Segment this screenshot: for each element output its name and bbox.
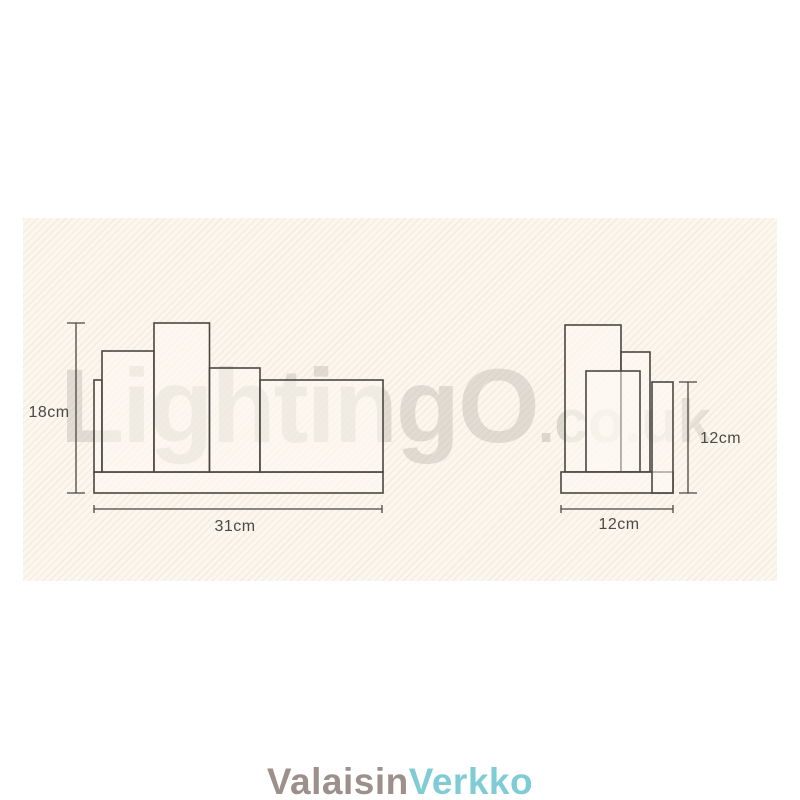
side-width-label: 12cm [598, 516, 639, 533]
front-view-drawing: 18cm 31cm [28, 323, 383, 535]
side-box-right [652, 382, 673, 493]
front-box-5 [260, 380, 383, 472]
side-height-label: 12cm [700, 430, 741, 447]
front-height-label: 18cm [28, 404, 69, 421]
front-base-shape [94, 472, 383, 493]
front-box-4 [210, 368, 261, 472]
product-dimension-image: LightingO.co.uk [0, 0, 800, 800]
front-box-3 [154, 323, 210, 472]
side-box-front [586, 371, 640, 472]
diagram-panel: LightingO.co.uk [23, 218, 777, 581]
front-height-dimension: 18cm [28, 323, 85, 493]
brand-logo: ValaisinVerkko [267, 763, 533, 800]
front-box-1 [94, 380, 102, 472]
dimension-drawing: 18cm 31cm [23, 218, 777, 581]
side-view-drawing: 12cm 12cm [561, 325, 741, 533]
front-width-label: 31cm [214, 518, 255, 535]
side-height-dimension: 12cm [679, 382, 741, 493]
front-width-dimension: 31cm [94, 505, 382, 535]
brand-logo-part2: Verkko [409, 761, 533, 800]
side-width-dimension: 12cm [561, 505, 673, 533]
brand-logo-part1: Valaisin [267, 761, 409, 800]
front-box-2 [102, 351, 154, 472]
